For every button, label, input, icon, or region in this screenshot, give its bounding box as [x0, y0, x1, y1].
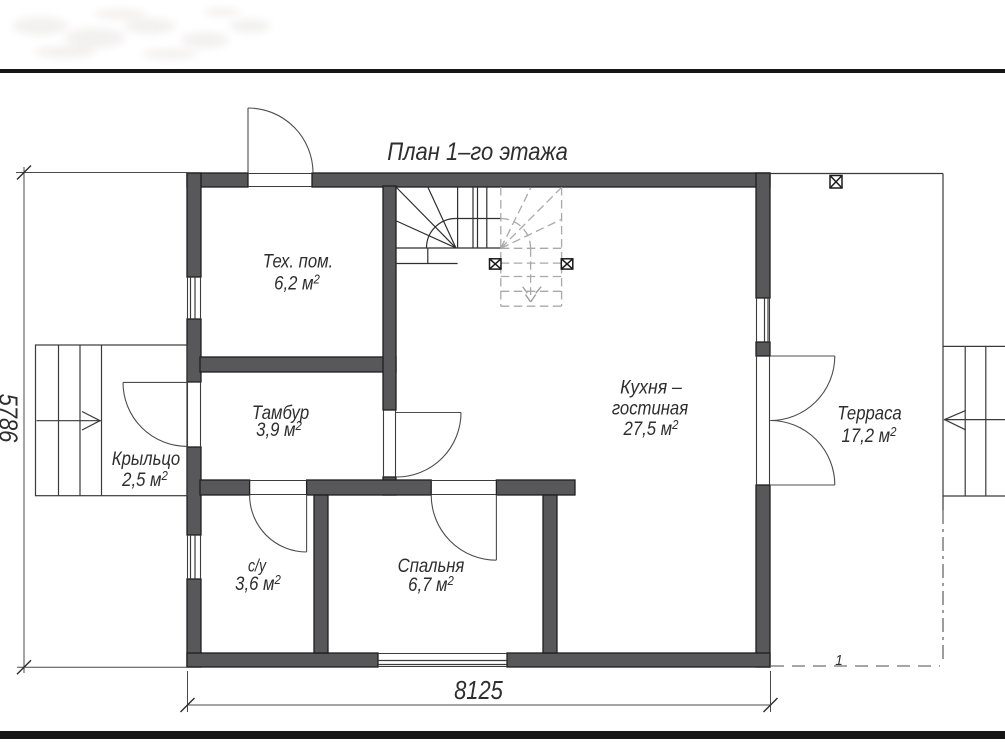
svg-text:17,2 м2: 17,2 м2 [842, 424, 897, 446]
svg-text:6,7 м2: 6,7 м2 [408, 573, 454, 595]
svg-text:27,5 м2: 27,5 м2 [623, 417, 679, 439]
svg-text:6,2 м2: 6,2 м2 [274, 272, 320, 294]
svg-text:План 1–го этажа: План 1–го этажа [387, 138, 568, 166]
svg-text:гостиная: гостиная [612, 397, 689, 418]
svg-text:Крыльцо: Крыльцо [112, 448, 181, 469]
svg-text:5786: 5786 [0, 394, 22, 443]
svg-text:8125: 8125 [454, 676, 503, 705]
svg-text:Терраса: Терраса [837, 403, 901, 424]
svg-text:2,5 м2: 2,5 м2 [121, 468, 168, 490]
svg-text:1: 1 [835, 652, 843, 669]
svg-text:3,6 м2: 3,6 м2 [235, 572, 281, 594]
svg-text:3,9 м2: 3,9 м2 [256, 418, 302, 440]
svg-text:Кухня –: Кухня – [620, 376, 682, 398]
svg-text:Тех. пом.: Тех. пом. [263, 251, 333, 272]
